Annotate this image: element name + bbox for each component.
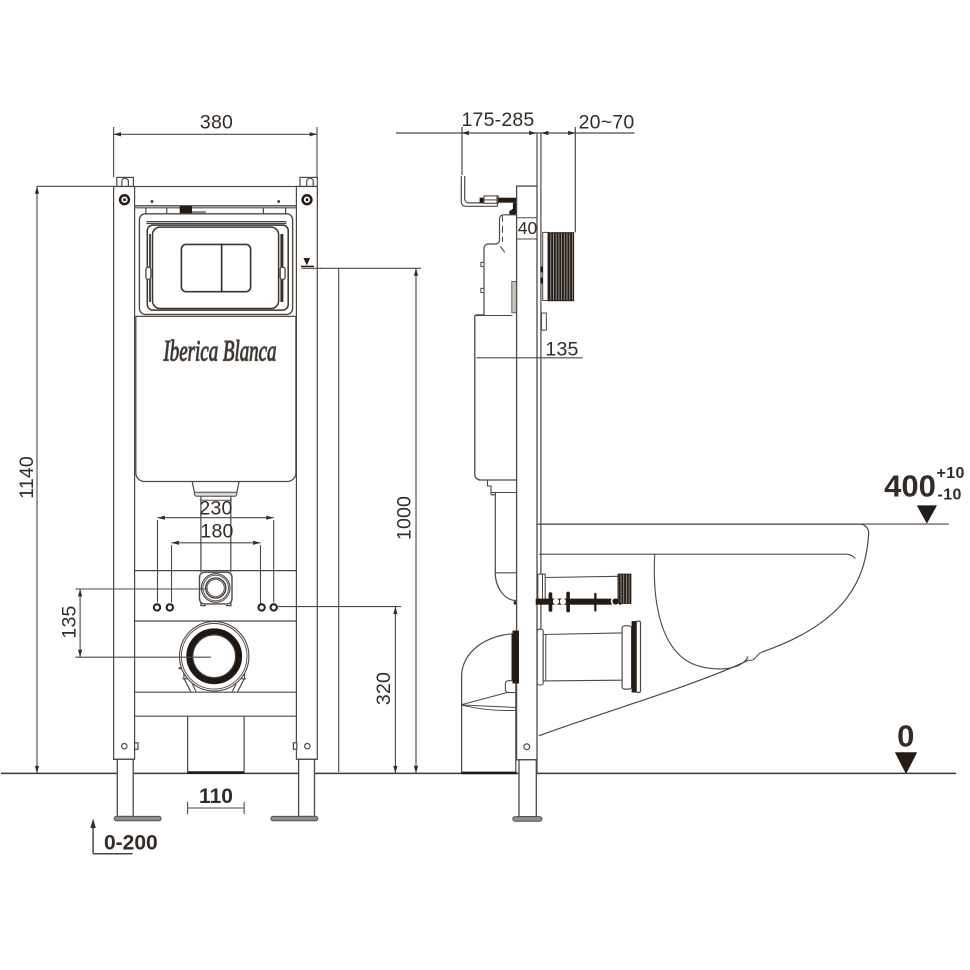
svg-text:0-200: 0-200 [104,832,158,855]
svg-text:400: 400 [884,468,936,503]
svg-text:135: 135 [545,338,578,360]
svg-text:320: 320 [373,672,395,705]
svg-text:Iberica Blanca: Iberica Blanca [163,335,277,368]
svg-text:230: 230 [199,497,232,519]
svg-text:40: 40 [518,218,538,238]
svg-text:175-285: 175-285 [462,109,535,131]
svg-text:1000: 1000 [394,496,416,540]
svg-text:180: 180 [200,520,233,542]
svg-text:20~70: 20~70 [579,112,635,134]
svg-text:380: 380 [200,112,233,134]
svg-text:+10: +10 [937,465,965,482]
svg-text:110: 110 [199,785,233,808]
svg-text:1140: 1140 [16,456,38,499]
svg-text:0: 0 [897,718,914,753]
svg-text:-10: -10 [938,487,962,504]
svg-text:135: 135 [59,605,81,638]
